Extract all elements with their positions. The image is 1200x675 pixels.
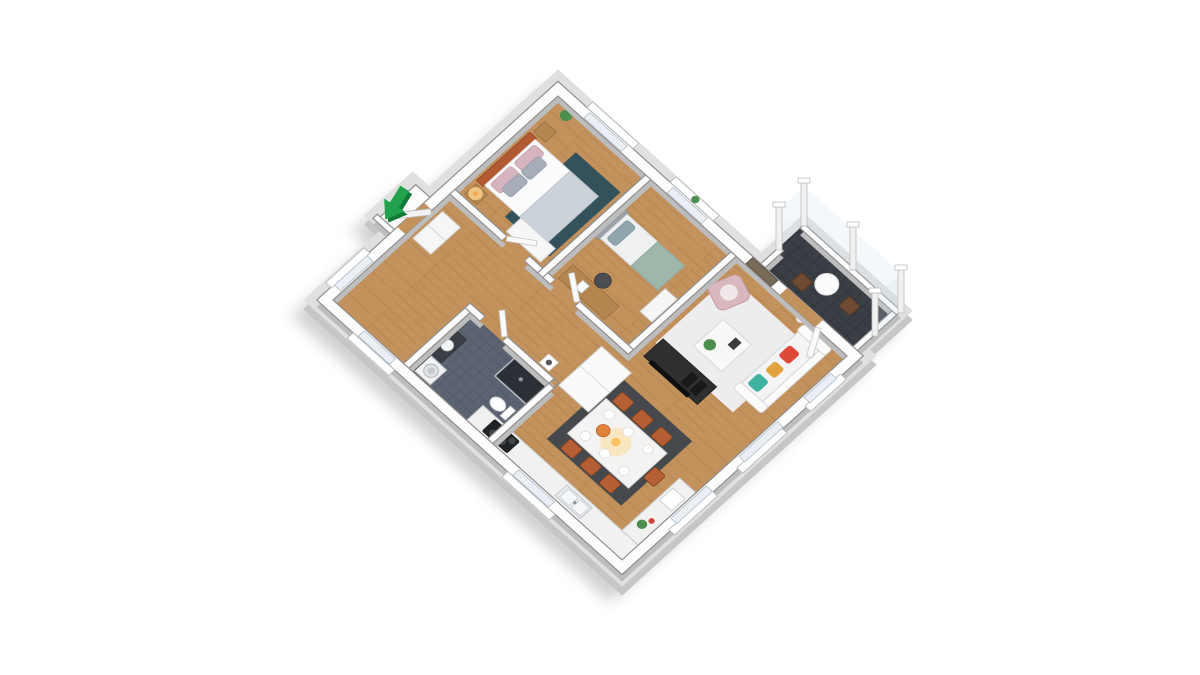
post-cap (869, 288, 881, 293)
railing-post (801, 182, 807, 226)
railing-post (850, 226, 856, 270)
railing-post (872, 292, 878, 336)
floor-plan: Entrance hall Bedroom 1 (double bed) Bed… (272, 16, 924, 605)
floor-plan-render: 3D isometric floor plan render – two-bed… (0, 0, 1200, 675)
railing-post (776, 206, 782, 250)
floor-plan-svg: 3D isometric floor plan render – two-bed… (0, 0, 1200, 675)
post-cap (847, 222, 859, 227)
railing-post (898, 269, 904, 313)
post-cap (895, 265, 907, 270)
post-cap (773, 202, 785, 207)
post-cap (798, 178, 810, 183)
